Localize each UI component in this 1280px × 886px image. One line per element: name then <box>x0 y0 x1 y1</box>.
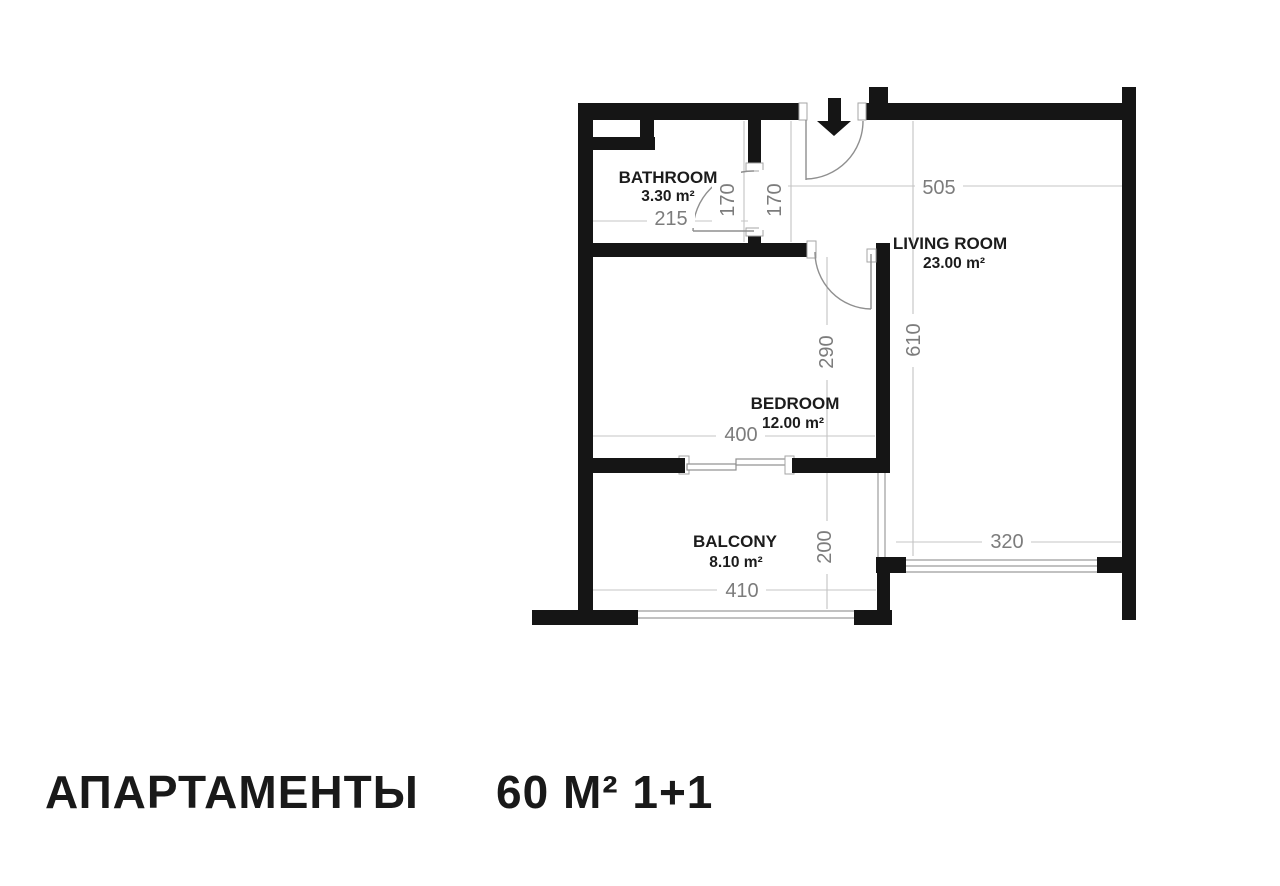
bedroom-sliding-panel-lower <box>687 464 736 470</box>
hall-bottom-wall <box>591 243 815 257</box>
living-window-corner-right <box>1097 557 1125 573</box>
dim-410: 410 <box>725 580 758 602</box>
dim-610: 610 <box>903 323 925 356</box>
shaft-wall-bottom <box>591 137 655 150</box>
dim-170-left: 170 <box>717 183 739 216</box>
dim-505: 505 <box>922 177 955 199</box>
balcony-right-wall <box>877 572 890 615</box>
dim-200: 200 <box>814 530 836 563</box>
room-name-bedroom: BEDROOM <box>751 394 840 413</box>
bedroom-bottom-wall-right <box>792 458 890 473</box>
living-window-corner-left <box>876 557 906 573</box>
room-area-living: 23.00 m² <box>923 255 985 272</box>
wall-top-left <box>578 103 800 120</box>
bedroom-living-divider-wall <box>876 243 890 473</box>
dim-170-right: 170 <box>764 183 786 216</box>
entry-column-stub <box>869 87 888 103</box>
dim-290: 290 <box>816 335 838 368</box>
room-area-bedroom: 12.00 m² <box>762 415 824 432</box>
room-name-living: LIVING ROOM <box>893 234 1007 253</box>
floor-plan-drawing: 505 170 170 215 290 610 400 200 410 320 … <box>0 0 1280 886</box>
wall-right <box>1122 87 1136 620</box>
floor-plan-page: 505 170 170 215 290 610 400 200 410 320 … <box>0 0 1280 886</box>
wall-top-right <box>864 103 1136 120</box>
room-name-bathroom: BATHROOM <box>619 168 718 187</box>
balcony-bottom-wall-left <box>532 610 638 625</box>
entrance-arrow-icon <box>817 98 851 136</box>
entry-door-jamb-right <box>858 103 866 120</box>
bedroom-door-arc <box>815 252 871 309</box>
dim-400: 400 <box>724 424 757 446</box>
dim-215: 215 <box>654 208 687 230</box>
bedroom-sliding-panel-upper <box>736 459 789 465</box>
room-name-balcony: BALCONY <box>693 532 778 551</box>
bathroom-door-jamb-top <box>746 163 763 171</box>
room-area-balcony: 8.10 m² <box>709 554 762 571</box>
apartment-size-label: 60 М² 1+1 <box>496 769 713 815</box>
bedroom-bottom-wall-left <box>591 458 685 473</box>
shaft-wall-right <box>640 120 654 139</box>
entry-door-jamb-left <box>799 103 807 120</box>
dim-320: 320 <box>990 531 1023 553</box>
room-area-bathroom: 3.30 m² <box>641 188 694 205</box>
wall-left <box>578 103 593 612</box>
apartment-title: АПАРТАМЕНТЫ <box>45 769 419 815</box>
